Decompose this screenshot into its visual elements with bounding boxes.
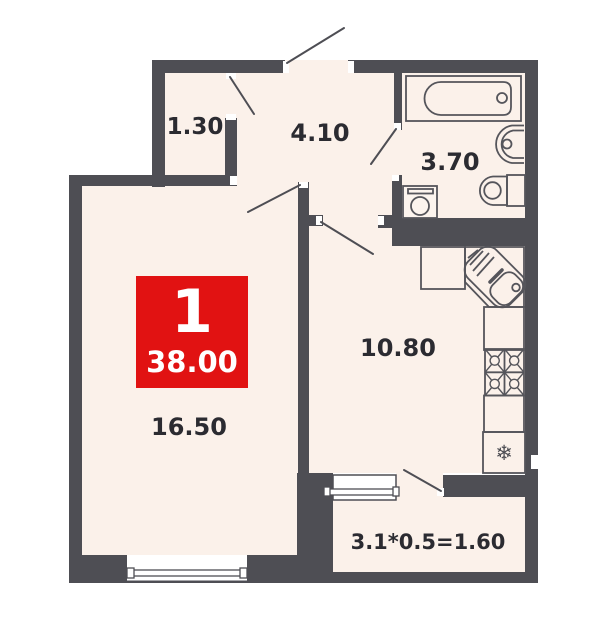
window-sill-cap-right — [393, 487, 399, 496]
bathroom-area-label: 3.70 — [420, 148, 479, 176]
floor-bathroom-doorway — [392, 130, 402, 175]
wall-bathroom-left-upper — [394, 73, 402, 130]
living-room-window — [127, 555, 247, 583]
floor-balcony-doorway — [396, 473, 443, 497]
wall-bathroom-bottom — [392, 218, 538, 246]
closet-area-label: 1.30 — [167, 114, 224, 140]
window-sill — [326, 489, 397, 495]
floor-plan: ❄ 1.30 4.10 3.70 10.80 16.50 3.1*0.5=1.6… — [0, 0, 610, 640]
wall-right — [525, 60, 538, 583]
wall-right-joint-notch — [531, 455, 539, 469]
wall-bottom-left — [69, 555, 127, 583]
wall-balcony-bottom — [322, 572, 538, 583]
wall-top-left — [152, 60, 285, 73]
wall-living-kitchen-divider — [298, 182, 309, 473]
badge-room-count: 1 — [171, 277, 213, 347]
entrance-door-swing — [287, 28, 344, 63]
kitchen-door-hinge — [316, 216, 322, 225]
balcony-window — [324, 475, 399, 500]
badge-total-area: 38.00 — [146, 345, 238, 379]
kitchen-door-jamb — [378, 216, 384, 225]
wall-top-right — [348, 60, 538, 73]
washing-machine — [403, 186, 437, 218]
floor-entrance-doorway — [285, 60, 348, 73]
wall-living-top — [69, 175, 237, 186]
window-opening — [127, 555, 247, 583]
hallway-area-label: 4.10 — [290, 119, 349, 147]
balcony-area-label: 3.1*0.5=1.60 — [351, 530, 506, 554]
wall-upper-left — [152, 60, 165, 187]
floor-kitchen-doorway — [323, 215, 378, 227]
wall-bathroom-left-lower — [392, 175, 402, 220]
kitchen-area-label: 10.80 — [360, 334, 436, 362]
entrance-jamb-right — [348, 61, 354, 73]
wall-left — [69, 175, 82, 583]
area-badge: 1 38.00 — [136, 276, 248, 388]
snowflake-icon: ❄ — [495, 441, 513, 465]
living-area-label: 16.50 — [151, 413, 227, 441]
window-sill-cap-left — [127, 568, 134, 578]
floor-plan-svg: ❄ 1.30 4.10 3.70 10.80 16.50 3.1*0.5=1.6… — [0, 0, 610, 640]
wall-kitchen-bottom — [443, 475, 538, 497]
bathroom-door-jamb — [392, 175, 399, 181]
window-sill-cap-right — [240, 568, 247, 578]
window-sill-cap-left — [324, 487, 330, 496]
window-box — [333, 475, 396, 500]
stove — [485, 349, 524, 396]
closet-door-jamb — [226, 114, 236, 120]
window-outer-line — [127, 581, 247, 584]
living-door-jamb — [230, 176, 237, 185]
window-sill — [133, 570, 241, 576]
wall-closet-right — [225, 118, 237, 186]
